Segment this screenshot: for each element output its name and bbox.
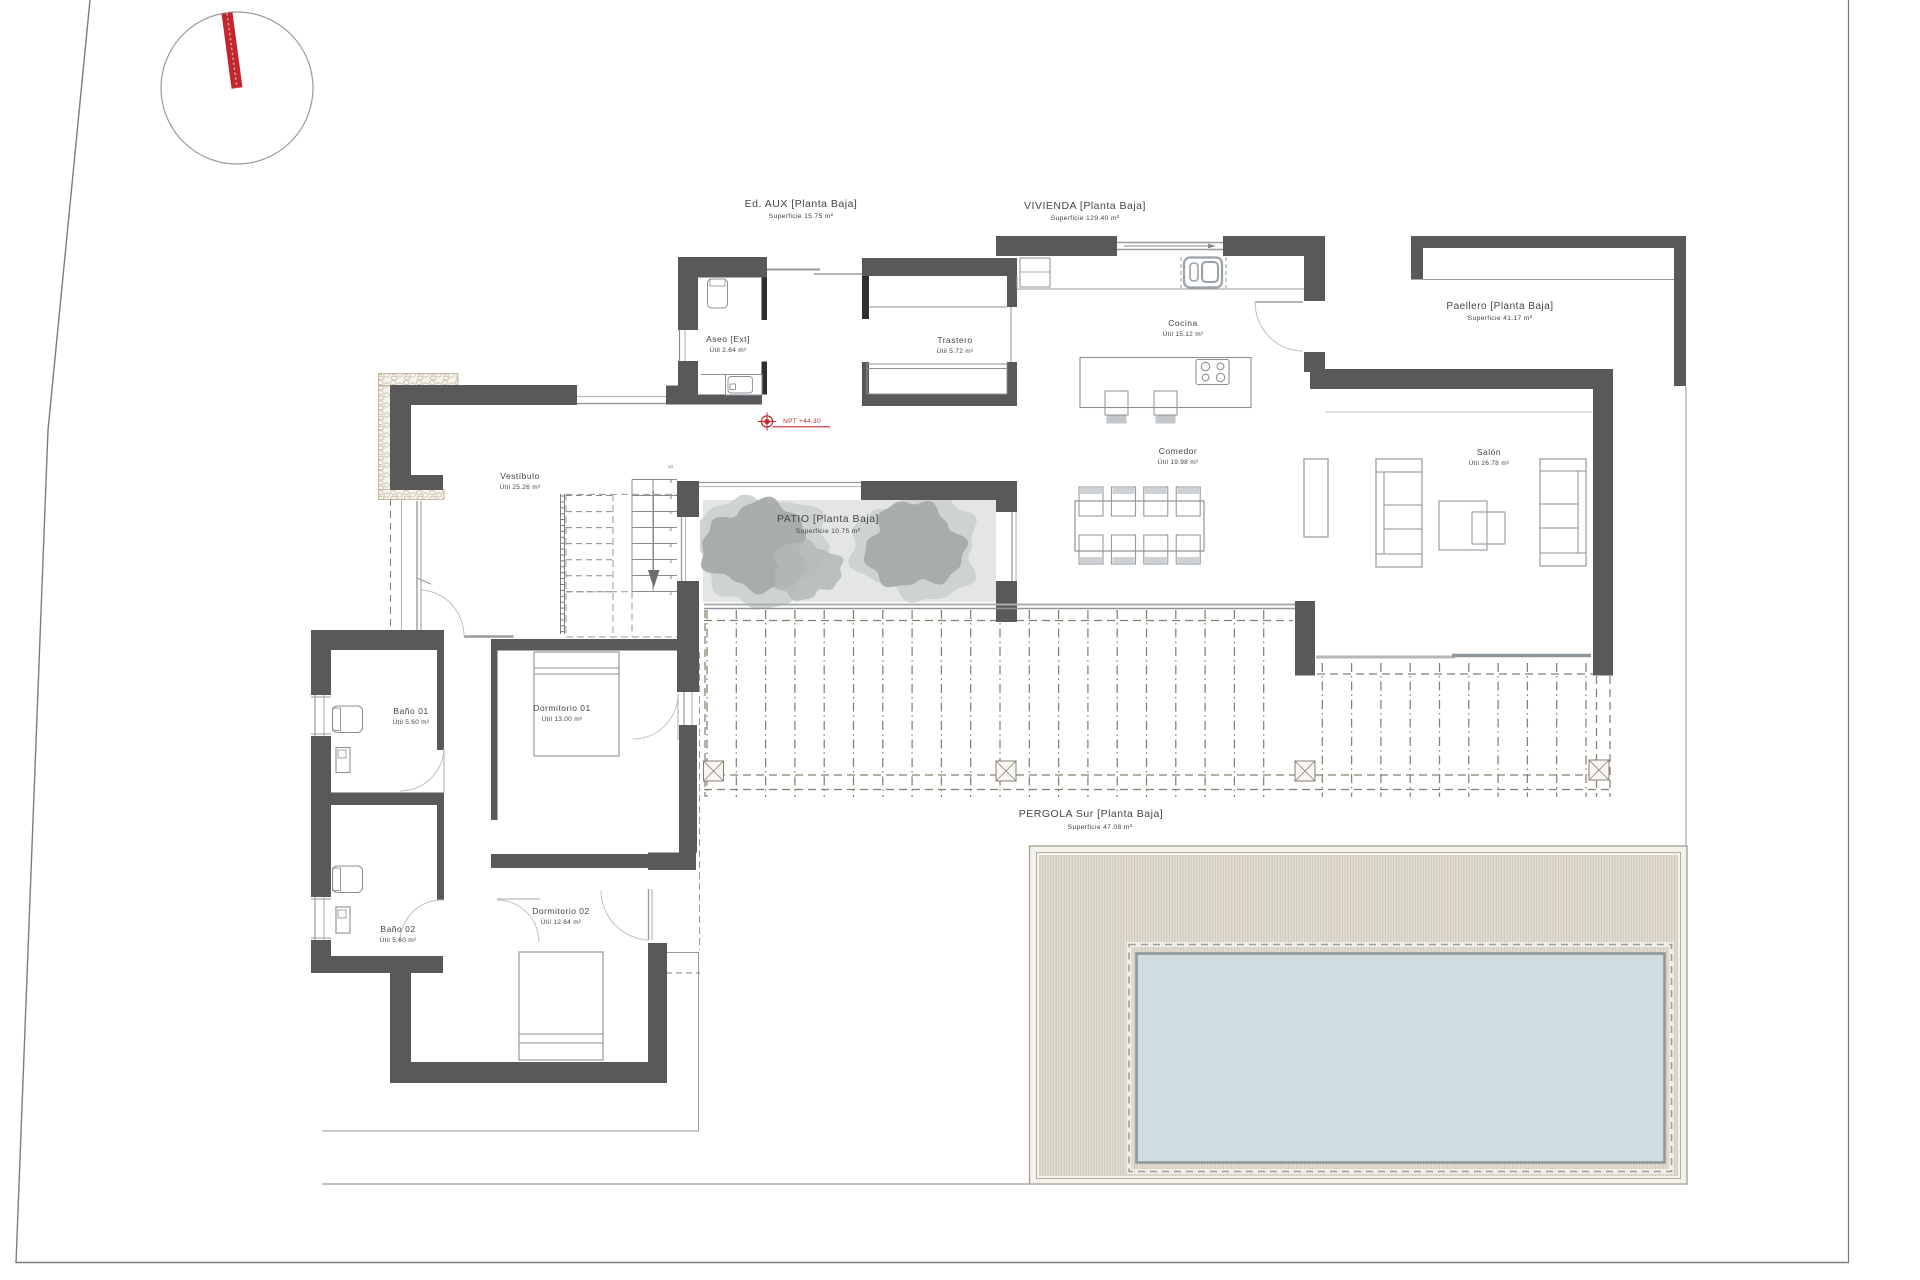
svg-text:Trastero: Trastero	[937, 335, 972, 345]
svg-text:Paellero [Planta Baja]: Paellero [Planta Baja]	[1446, 301, 1553, 312]
svg-text:10: 10	[668, 464, 674, 469]
svg-text:Útil 5.60 m²: Útil 5.60 m²	[393, 717, 430, 726]
svg-text:Útil 12.84 m²: Útil 12.84 m²	[541, 917, 582, 926]
svg-text:Baño 01: Baño 01	[393, 706, 428, 716]
svg-text:NPT +44.30: NPT +44.30	[783, 418, 821, 425]
svg-text:Superficie 10.75 m²: Superficie 10.75 m²	[796, 528, 861, 535]
svg-text:Útil 5.72 m²: Útil 5.72 m²	[937, 346, 974, 355]
svg-text:Útil 13.00 m²: Útil 13.00 m²	[542, 714, 583, 723]
svg-text:Superficie 15.75 m²: Superficie 15.75 m²	[769, 213, 834, 220]
svg-text:Útil 19.98 m²: Útil 19.98 m²	[1158, 457, 1199, 466]
svg-text:Superficie 41.17 m²: Superficie 41.17 m²	[1468, 315, 1533, 322]
svg-text:Útil 26.78 m²: Útil 26.78 m²	[1469, 458, 1510, 467]
svg-text:Dormitorio 01: Dormitorio 01	[533, 703, 591, 713]
svg-text:Vestíbulo: Vestíbulo	[500, 471, 539, 481]
svg-text:Ed. AUX [Planta Baja]: Ed. AUX [Planta Baja]	[745, 198, 858, 210]
svg-text:PATIO [Planta Baja]: PATIO [Planta Baja]	[777, 513, 879, 525]
svg-text:Comedor: Comedor	[1159, 446, 1197, 456]
svg-text:Útil 15.12 m²: Útil 15.12 m²	[1163, 329, 1204, 338]
svg-text:Útil 2.64 m²: Útil 2.64 m²	[710, 345, 747, 354]
svg-text:Cocina: Cocina	[1168, 318, 1197, 328]
svg-text:Superficie 129.40 m²: Superficie 129.40 m²	[1051, 215, 1120, 222]
svg-text:VIVIENDA [Planta Baja]: VIVIENDA [Planta Baja]	[1024, 200, 1146, 212]
svg-text:Baño 02: Baño 02	[380, 924, 415, 934]
svg-text:Aseo [Ext]: Aseo [Ext]	[706, 334, 750, 344]
svg-text:Superficie 47.08 m²: Superficie 47.08 m²	[1068, 824, 1133, 831]
svg-text:Útil 25.26 m²: Útil 25.26 m²	[500, 482, 541, 491]
svg-text:Útil 5.60 m²: Útil 5.60 m²	[380, 935, 417, 944]
svg-text:Dormitorio 02: Dormitorio 02	[532, 906, 590, 916]
svg-text:PERGOLA Sur [Planta Baja]: PERGOLA Sur [Planta Baja]	[1019, 808, 1163, 820]
svg-text:Salón: Salón	[1477, 447, 1501, 457]
